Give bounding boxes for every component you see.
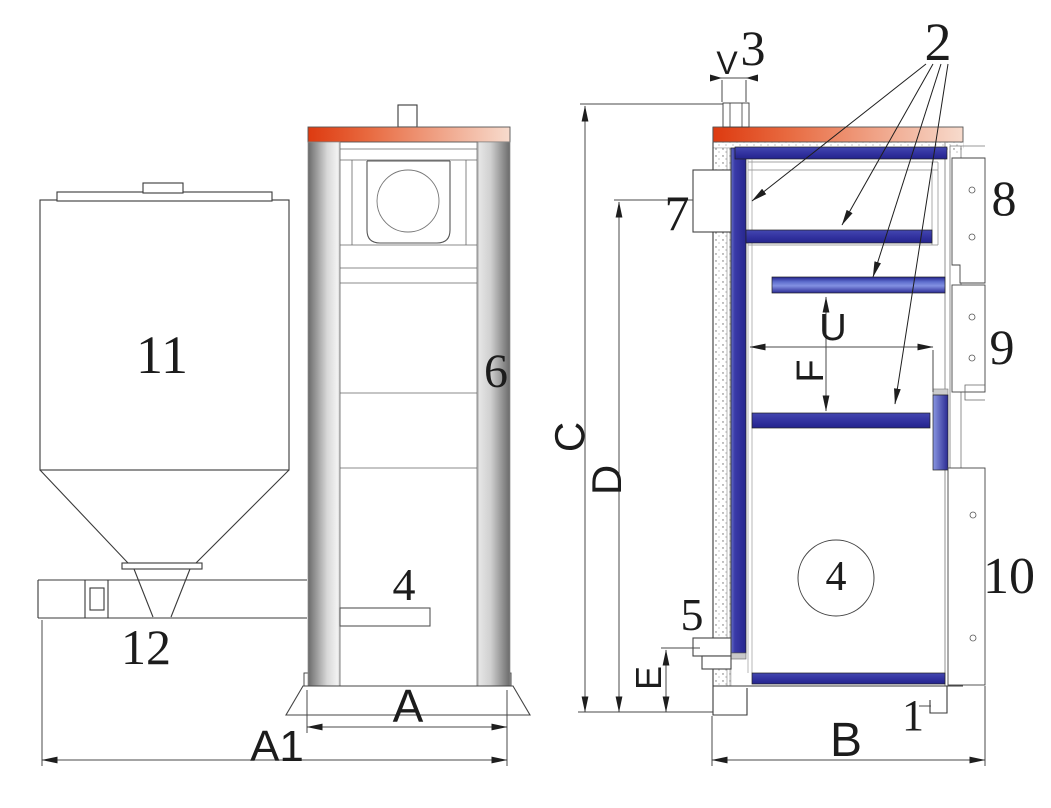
part-label-4-front: 4 [393, 562, 416, 608]
flue-outlet-box [693, 170, 731, 232]
hopper-cone [40, 470, 289, 563]
dim-label-d: D [586, 465, 628, 495]
section-insulation-topright [945, 142, 963, 154]
door-lower [948, 468, 985, 685]
hopper-funnel-cone [134, 569, 190, 617]
baffle-lower [752, 413, 930, 428]
part-label-6: 6 [484, 348, 508, 396]
dim-label-u: U [819, 309, 846, 347]
front-column-left [308, 142, 340, 686]
front-door-handle [340, 608, 430, 626]
hopper-funnel-flange [122, 563, 202, 569]
auger-coupling-neck [90, 588, 104, 610]
baffle-right-vertical-cap [933, 389, 948, 395]
part-label-7: 7 [665, 188, 690, 238]
front-flue-box [367, 161, 450, 243]
return-stub-upper [693, 638, 731, 656]
dim-label-a1: A1 [250, 725, 304, 769]
dim-label-e: E [631, 666, 667, 690]
part-label-3: 3 [741, 23, 766, 73]
dim-label-c: C [549, 422, 591, 452]
part-label-5: 5 [681, 592, 704, 638]
part-label-12: 12 [121, 622, 171, 672]
baffle-middle-floating [772, 277, 945, 293]
boiler-front-view [286, 105, 530, 715]
dim-label-v: V [716, 47, 737, 79]
baffle-right-vertical [933, 395, 948, 470]
section-leg-left [713, 688, 747, 715]
part-label-1: 1 [902, 694, 924, 738]
hopper-lid-knob [143, 183, 183, 193]
water-jacket-wall-cap [731, 653, 746, 659]
door-middle [952, 285, 985, 392]
section-top-plate-red [713, 127, 963, 142]
door-upper [952, 158, 985, 283]
front-top-plate-red [308, 127, 510, 142]
part-label-8: 8 [992, 173, 1017, 223]
section-bottom-plate [752, 673, 945, 684]
front-top-band [340, 149, 477, 160]
part-label-11: 11 [136, 328, 188, 382]
front-column-right [478, 142, 510, 686]
dim-label-b: B [830, 717, 862, 765]
part-label-2: 2 [925, 15, 952, 69]
front-panel-seams [340, 268, 477, 468]
return-stub-lower [702, 656, 731, 669]
section-leg-right [930, 686, 947, 713]
part-label-9: 9 [990, 322, 1015, 372]
part-label-10: 10 [983, 551, 1035, 603]
boiler-section-view [693, 103, 985, 715]
hopper-view [38, 183, 307, 618]
part-label-4-section: 4 [826, 556, 847, 598]
water-jacket-front-wall [731, 148, 746, 653]
baffle-second [746, 230, 932, 243]
boiler-technical-drawing: 11 12 6 4 2 3 7 8 9 10 5 1 4 A A1 B C D … [0, 0, 1051, 808]
section-chimney-stub [723, 103, 749, 127]
baffle-top [735, 147, 947, 159]
front-chimney-stub [398, 105, 417, 127]
dim-label-f: F [792, 359, 830, 382]
auger-coupling [85, 580, 108, 618]
dim-label-a: A [393, 683, 424, 729]
drawing-canvas [0, 0, 1051, 808]
